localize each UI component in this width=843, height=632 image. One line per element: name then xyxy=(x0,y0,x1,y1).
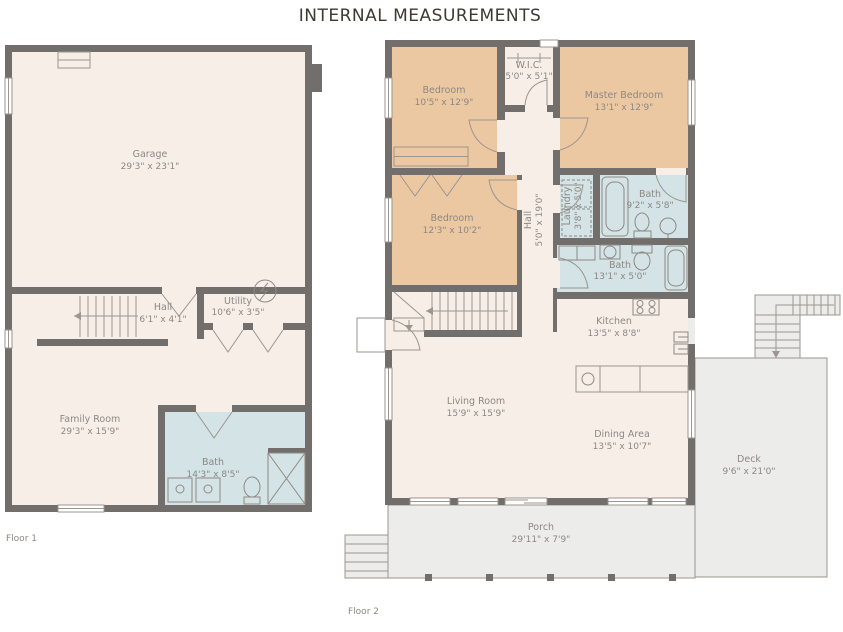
bedroom2-label: Bedroom xyxy=(431,213,474,224)
porch-steps-icon xyxy=(345,535,388,578)
bath2-label: Bath xyxy=(609,260,631,271)
hall-f2-label: Hall xyxy=(523,211,534,229)
bath-door-opening-f1 xyxy=(196,405,232,412)
bath-f1-label: Bath xyxy=(202,457,224,468)
kitchen-label: Kitchen xyxy=(596,316,632,327)
deck-dims: 9'6" x 21'0" xyxy=(723,467,776,477)
porch-dims: 29'11" x 7'9" xyxy=(512,535,571,545)
hall-upper xyxy=(505,112,553,175)
page-title: INTERNAL MEASUREMENTS xyxy=(299,6,542,26)
hall-f1-dims: 6'1" x 4'1" xyxy=(139,315,186,325)
porch-label: Porch xyxy=(528,522,554,533)
floor1-plan: Garage 29'3" x 23'1" Hall 6'1" x 4'1" Ut… xyxy=(5,45,322,544)
floorplan-drawing: INTERNAL MEASUREMENTS xyxy=(0,0,843,632)
room-bath-f1 xyxy=(165,412,305,505)
bedroom2-door-opening xyxy=(517,180,522,210)
bedroom1-label: Bedroom xyxy=(423,85,466,96)
chimney xyxy=(312,64,322,92)
bath1-dims: 9'2" x 5'8" xyxy=(626,201,673,211)
living-label: Living Room xyxy=(447,396,505,407)
wic-door-opening xyxy=(525,105,547,112)
utility-door-opening-1 xyxy=(213,323,243,330)
front-door-opening xyxy=(385,320,392,350)
family-dims: 29'3" x 15'9" xyxy=(61,427,120,437)
bedroom2-dims: 12'3" x 10'2" xyxy=(423,226,482,236)
laundry-dims: 3'8" x 5'0" xyxy=(574,182,584,229)
garage-dims: 29'3" x 23'1" xyxy=(121,162,180,172)
bath-f1-dims: 14'3" x 8'5" xyxy=(187,470,240,480)
entry-stoop xyxy=(357,318,385,352)
master-dims: 13'1" x 12'9" xyxy=(595,103,654,113)
bedroom1-door-opening xyxy=(497,120,505,152)
utility-label: Utility xyxy=(224,296,252,307)
floorplan-page: INTERNAL MEASUREMENTS xyxy=(0,0,843,632)
bath1-label: Bath xyxy=(639,189,661,200)
wic-label: W.I.C. xyxy=(516,60,543,71)
garage-label: Garage xyxy=(133,149,168,160)
garage-hall-opening xyxy=(162,287,196,294)
bath-top-wall xyxy=(158,405,312,412)
bath2-dims: 13'1" x 5'0" xyxy=(594,272,647,282)
master-door-opening xyxy=(553,118,560,150)
stair-wall xyxy=(424,330,522,337)
laundry-label: Laundry xyxy=(562,186,573,225)
wic-dims: 5'0" x 5'1" xyxy=(505,72,552,82)
deck-label: Deck xyxy=(737,454,761,465)
bath-left-wall xyxy=(158,405,165,512)
hall-f1-label: Hall xyxy=(154,302,172,313)
living-dims: 15'9" x 15'9" xyxy=(447,409,506,419)
master-label: Master Bedroom xyxy=(585,90,663,101)
hall-f2-dims: 5'0" x 19'0" xyxy=(535,194,545,247)
bath2-door-opening xyxy=(553,258,560,288)
dining-dims: 13'5" x 10'7" xyxy=(593,442,652,452)
utility-dims: 10'6" x 3'5" xyxy=(212,308,265,318)
kitchen-dims: 13'5" x 8'8" xyxy=(588,329,641,339)
utility-door-opening-2 xyxy=(253,323,283,330)
floor2-label: Floor 2 xyxy=(348,607,379,617)
family-label: Family Room xyxy=(60,414,121,425)
bath1-door-opening xyxy=(656,168,686,175)
hall-family-wall xyxy=(37,339,168,346)
deck-door-opening xyxy=(688,318,695,344)
laundry-door-opening xyxy=(553,185,560,213)
bedroom1-dims: 10'5" x 12'9" xyxy=(415,98,474,108)
floor1-label: Floor 1 xyxy=(6,534,37,544)
room-living-dining xyxy=(392,332,688,498)
dining-label: Dining Area xyxy=(594,429,650,440)
